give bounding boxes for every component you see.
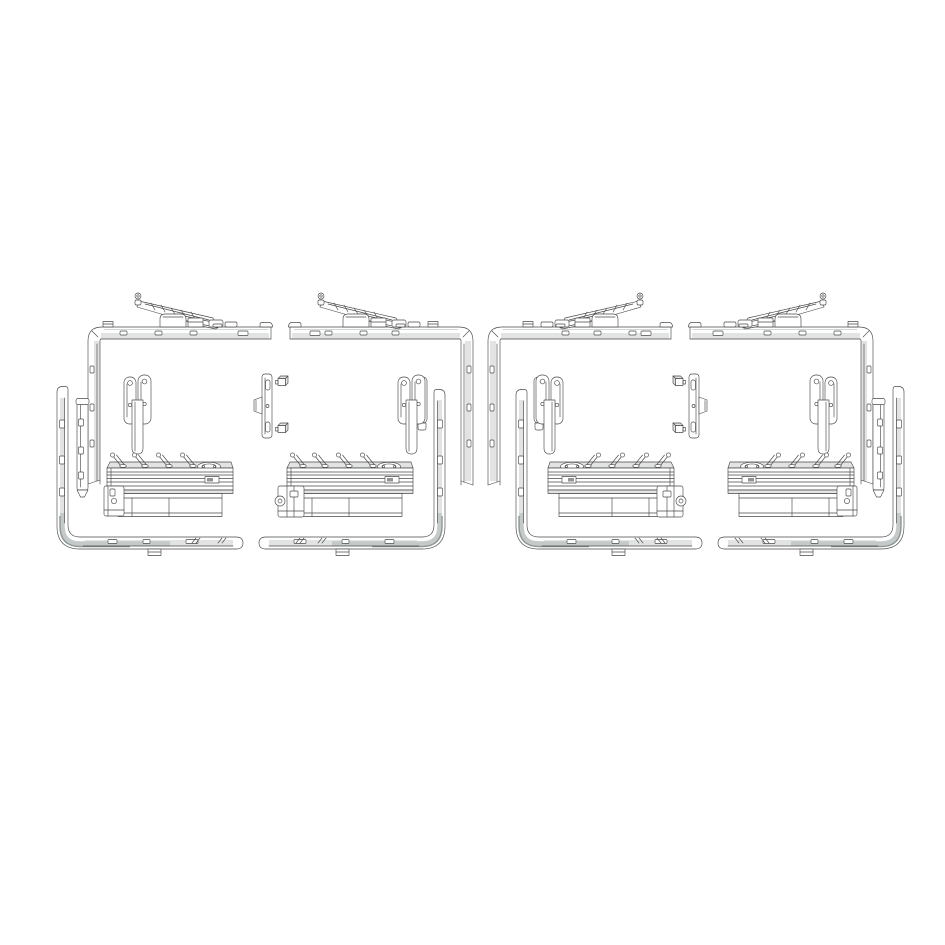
technical-drawing-canvas	[0, 0, 945, 945]
hardware-pair-right	[485, 288, 921, 564]
left-pair-drawing	[40, 288, 476, 564]
right-pair-drawing	[485, 288, 921, 564]
hardware-pair-left	[40, 288, 476, 564]
